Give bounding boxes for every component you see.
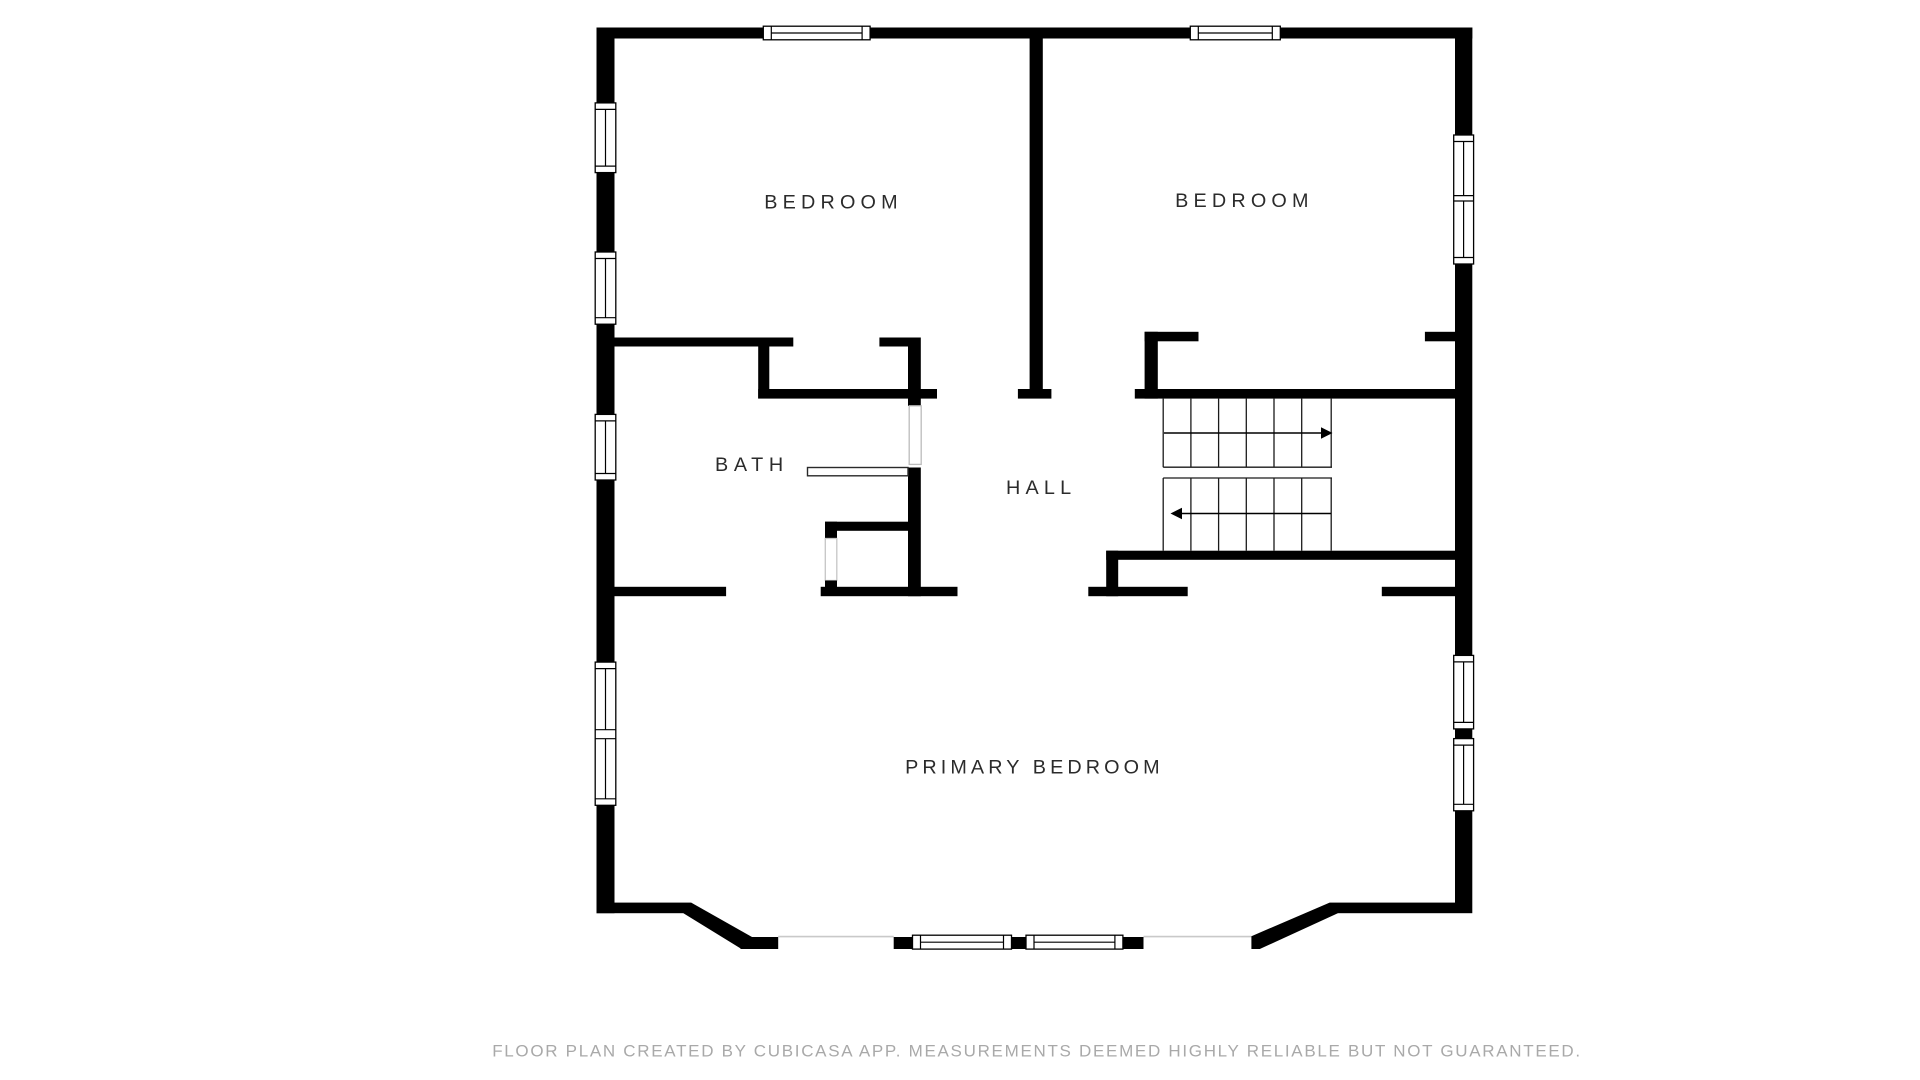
svg-text:FLOOR PLAN CREATED BY CUBICASA: FLOOR PLAN CREATED BY CUBICASA APP. MEAS… — [492, 1042, 1582, 1061]
svg-text:BATH: BATH — [715, 454, 789, 476]
svg-text:PRIMARY BEDROOM: PRIMARY BEDROOM — [905, 756, 1164, 778]
svg-text:HALL: HALL — [1006, 477, 1076, 499]
svg-text:BEDROOM: BEDROOM — [1175, 190, 1314, 212]
svg-text:BEDROOM: BEDROOM — [764, 191, 903, 213]
